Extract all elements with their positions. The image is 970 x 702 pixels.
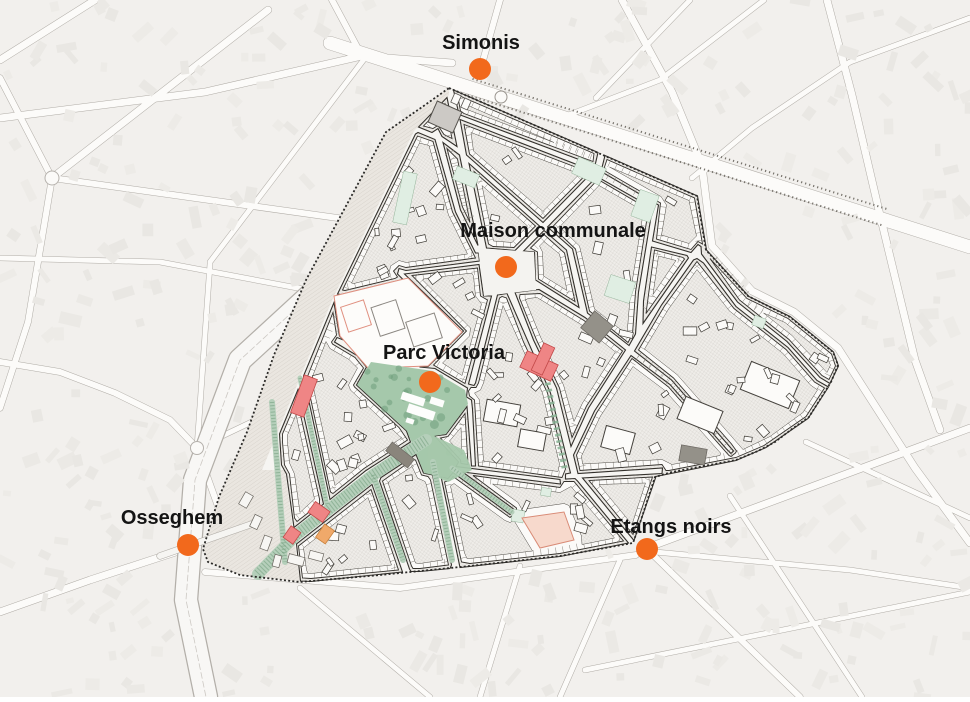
svg-text:Osseghem: Osseghem [121,507,223,529]
svg-text:Maison communale: Maison communale [460,220,646,242]
svg-text:Simonis: Simonis [442,32,520,54]
svg-text:Parc Victoria: Parc Victoria [383,342,506,364]
svg-text:Etangs noirs: Etangs noirs [610,516,731,538]
